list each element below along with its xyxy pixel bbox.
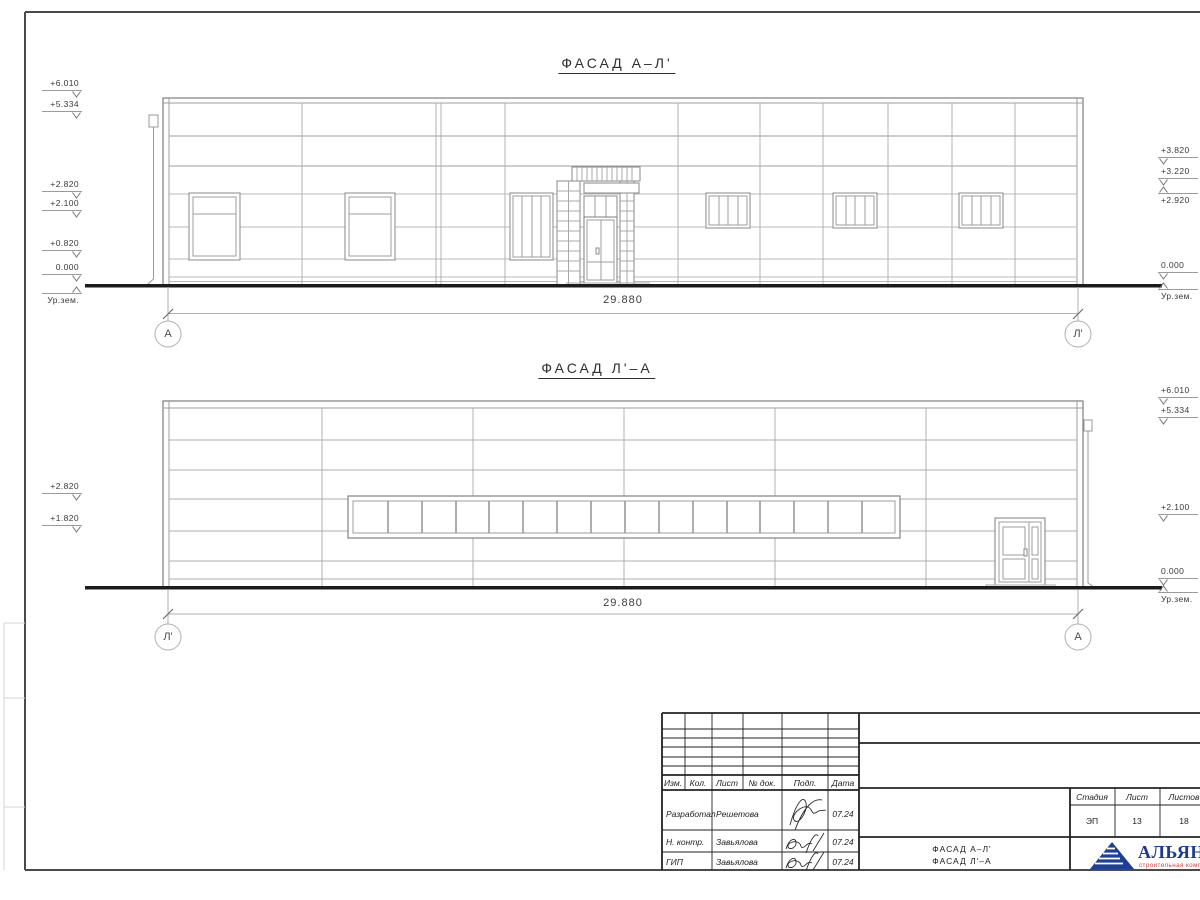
elevation-mark: +5.334 [42,100,82,112]
signatures [786,799,826,871]
elevation-tick-icon [1159,585,1168,592]
tb-sheet-value: 13 [1132,817,1141,826]
axis-label: А [1074,631,1081,643]
tb-stage-label: Стадия [1076,793,1108,802]
elevation-mark: +6.010 [1158,386,1198,398]
elevation-tick-icon [1159,398,1168,405]
tb-date: 07.24 [832,838,853,847]
tb-total-label: Листов [1169,793,1200,802]
elevation-tick-icon [72,251,81,258]
elevation-mark: +3.820 [1158,146,1198,158]
window [833,193,877,228]
elevation-tick-icon [72,526,81,533]
elevation-tick-icon [1159,179,1168,186]
tb-date: 07.24 [832,858,853,867]
dimension-label: 29.880 [603,597,643,609]
frame-margin-cells [4,623,25,870]
tb-role: Разработал [666,810,716,819]
window [510,193,553,260]
elevation-mark: 0.000 [1158,261,1198,273]
window [706,193,750,228]
axis-label: Л' [163,631,172,643]
transom-glazing [584,196,617,217]
window [189,193,240,260]
company-subtitle: строительная компания [1139,862,1200,869]
elevation-mark: +2.100 [1158,503,1198,515]
elevation-mark: +3.220 [1158,167,1198,179]
dimension-label: 29.880 [603,294,643,306]
tb-name: Завьялова [716,858,758,867]
tb-role: Н. контр. [666,838,704,847]
elevation-tick-icon [1159,186,1168,193]
elevation-tick-icon [72,112,81,119]
tb-col-podp: Подп. [794,779,817,788]
facade-top-title: ФАСАД А–Л' [558,55,675,74]
logo-pyramid-icon [1090,842,1134,869]
window [959,193,1003,228]
tb-total-value: 18 [1179,817,1188,826]
elevation-tick-icon [72,286,81,293]
company-logo: АЛЬЯНС строительная компания [1072,838,1200,870]
axis-label: Л' [1073,328,1082,340]
tb-doc-title-2: ФАСАД Л'–А [932,857,991,866]
elevation-tick-icon [1159,282,1168,289]
facade-bottom-title: ФАСАД Л'–А [538,360,655,379]
signature [786,833,824,853]
tb-col-data: Дата [832,779,854,788]
tb-date: 07.24 [832,810,853,819]
facade-top-drawing [85,98,1162,288]
tb-col-izm: Изм. [664,779,682,788]
elevation-tick-icon [72,494,81,501]
tb-col-ndok: № док. [748,779,775,788]
window [345,193,395,260]
elevation-mark: 0.000 [1158,567,1198,579]
elevation-tick-icon [1159,418,1168,425]
elevation-mark: +2.820 [42,482,82,494]
elevation-tick-icon [72,275,81,282]
signature [790,799,826,830]
elevation-mark: +6.010 [42,79,82,91]
ground-line [85,284,1162,288]
tb-col-kol: Кол. [690,779,707,788]
tb-role: ГИП [666,858,683,867]
drawing-linework [0,0,1200,900]
elevation-tick-icon [1159,515,1168,522]
tb-doc-title-1: ФАСАД А–Л' [932,845,991,854]
tb-name: Завьялова [716,838,758,847]
elevation-mark: 0.000 [42,263,82,275]
facade-bottom-drawing [85,401,1162,590]
drainpipe [148,115,158,284]
drawing-sheet: ФАСАД А–Л' ФАСАД Л'–А 29.880 29.880 А Л'… [0,0,1200,900]
signature [786,852,824,871]
company-name: АЛЬЯНС [1138,842,1200,863]
ground-level-mark: Ур.зем. [42,293,82,305]
tb-sheet-label: Лист [1126,793,1148,802]
elevation-mark: +2.820 [42,180,82,192]
elevation-tick-icon [1159,273,1168,280]
tb-name: Решетова [716,810,759,819]
elevation-tick-icon [72,211,81,218]
elevation-mark: +2.100 [42,199,82,211]
elevation-tick-icon [72,91,81,98]
ground-line [85,586,1162,590]
axis-label: А [164,328,171,340]
drainpipe [1084,420,1094,587]
entrance-door [584,217,617,283]
tb-stage-value: ЭП [1086,817,1098,826]
ground-level-mark: Ур.зем. [1158,289,1198,301]
elevation-mark: +0.820 [42,239,82,251]
elevation-mark: +2.920 [1158,193,1198,205]
elevation-mark: +5.334 [1158,406,1198,418]
sign-board [584,183,639,193]
ground-level-mark: Ур.зем. [1158,592,1198,604]
elevation-mark: +1.820 [42,514,82,526]
tb-col-list: Лист [716,779,738,788]
elevation-tick-icon [1159,158,1168,165]
ribbon-window [348,496,900,538]
